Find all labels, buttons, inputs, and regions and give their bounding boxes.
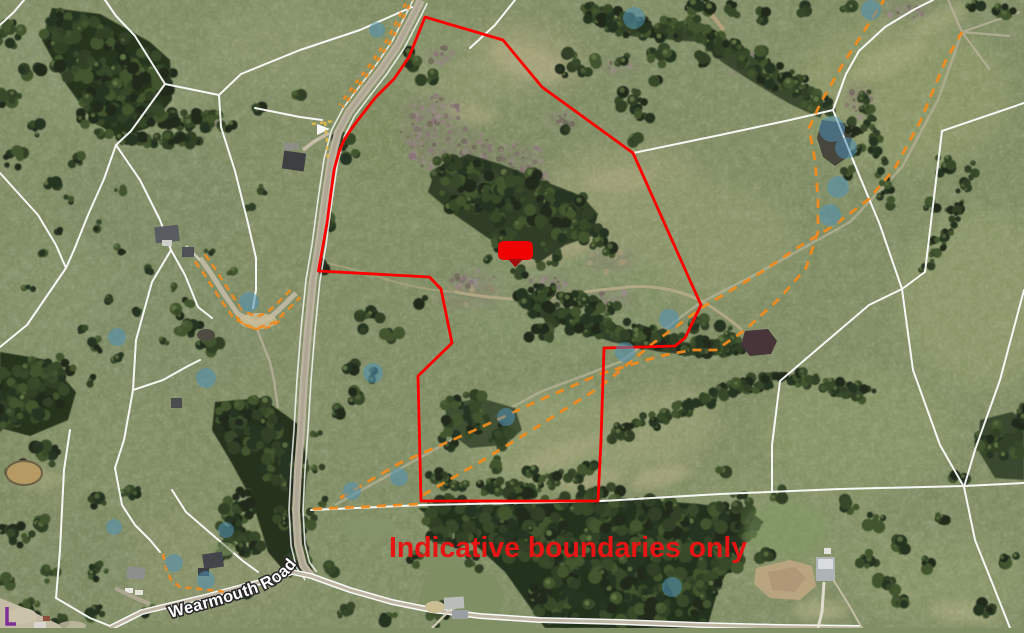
svg-text:Indicative boundaries only: Indicative boundaries only (389, 532, 747, 564)
